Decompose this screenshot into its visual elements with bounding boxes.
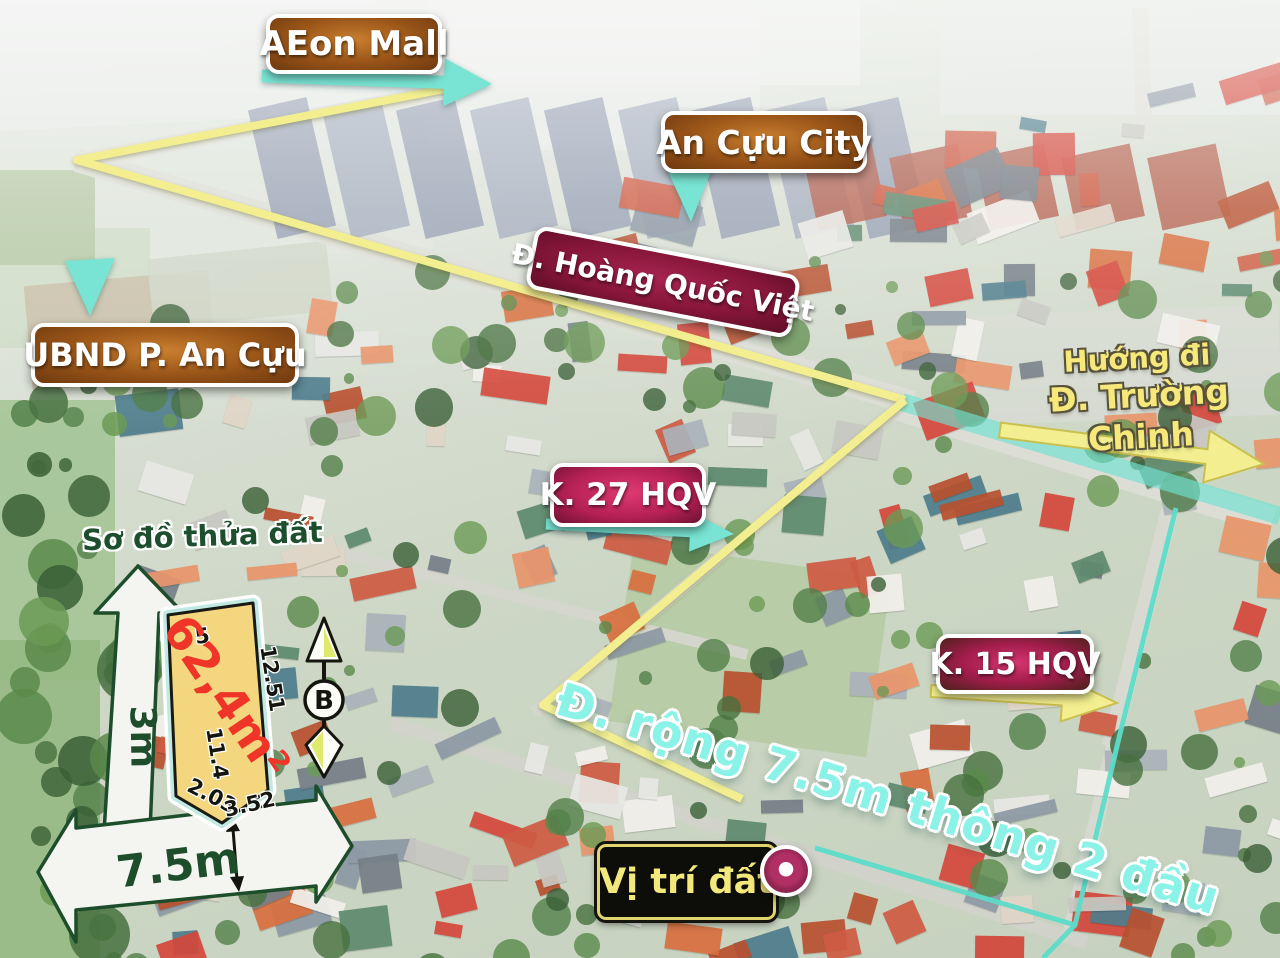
aeon-mall-badge: AEon Mall [266, 14, 442, 74]
aeon-mall-label: AEon Mall [259, 24, 448, 64]
annotated-aerial-map: 5 12.51 11.4 2.03 3.52 62,4m² 3m 7.5m B … [0, 0, 1280, 958]
an-cuu-city-badge: An Cựu City [661, 111, 867, 173]
truong-chinh-line2: Đ. Trường Chinh [1002, 369, 1278, 464]
k27-hqv-label: K. 27 HQV [540, 477, 717, 513]
ubnd-an-cuu-label: UBND P. An Cựu [23, 336, 306, 374]
marker-ring [764, 849, 808, 893]
land-position-label: Vị trí đất [599, 862, 774, 902]
k15-hqv-label: K. 15 HQV [929, 647, 1100, 682]
land-position-badge: Vị trí đất [597, 844, 776, 920]
k27-hqv-badge: K. 27 HQV [550, 463, 706, 527]
an-cuu-city-label: An Cựu City [656, 123, 872, 162]
truong-chinh-direction-text: Hướng đi Đ. Trường Chinh [1000, 334, 1278, 464]
ubnd-an-cuu-badge: UBND P. An Cựu [31, 323, 299, 387]
k15-hqv-badge: K. 15 HQV [936, 634, 1094, 694]
land-position-marker-icon [760, 845, 812, 897]
